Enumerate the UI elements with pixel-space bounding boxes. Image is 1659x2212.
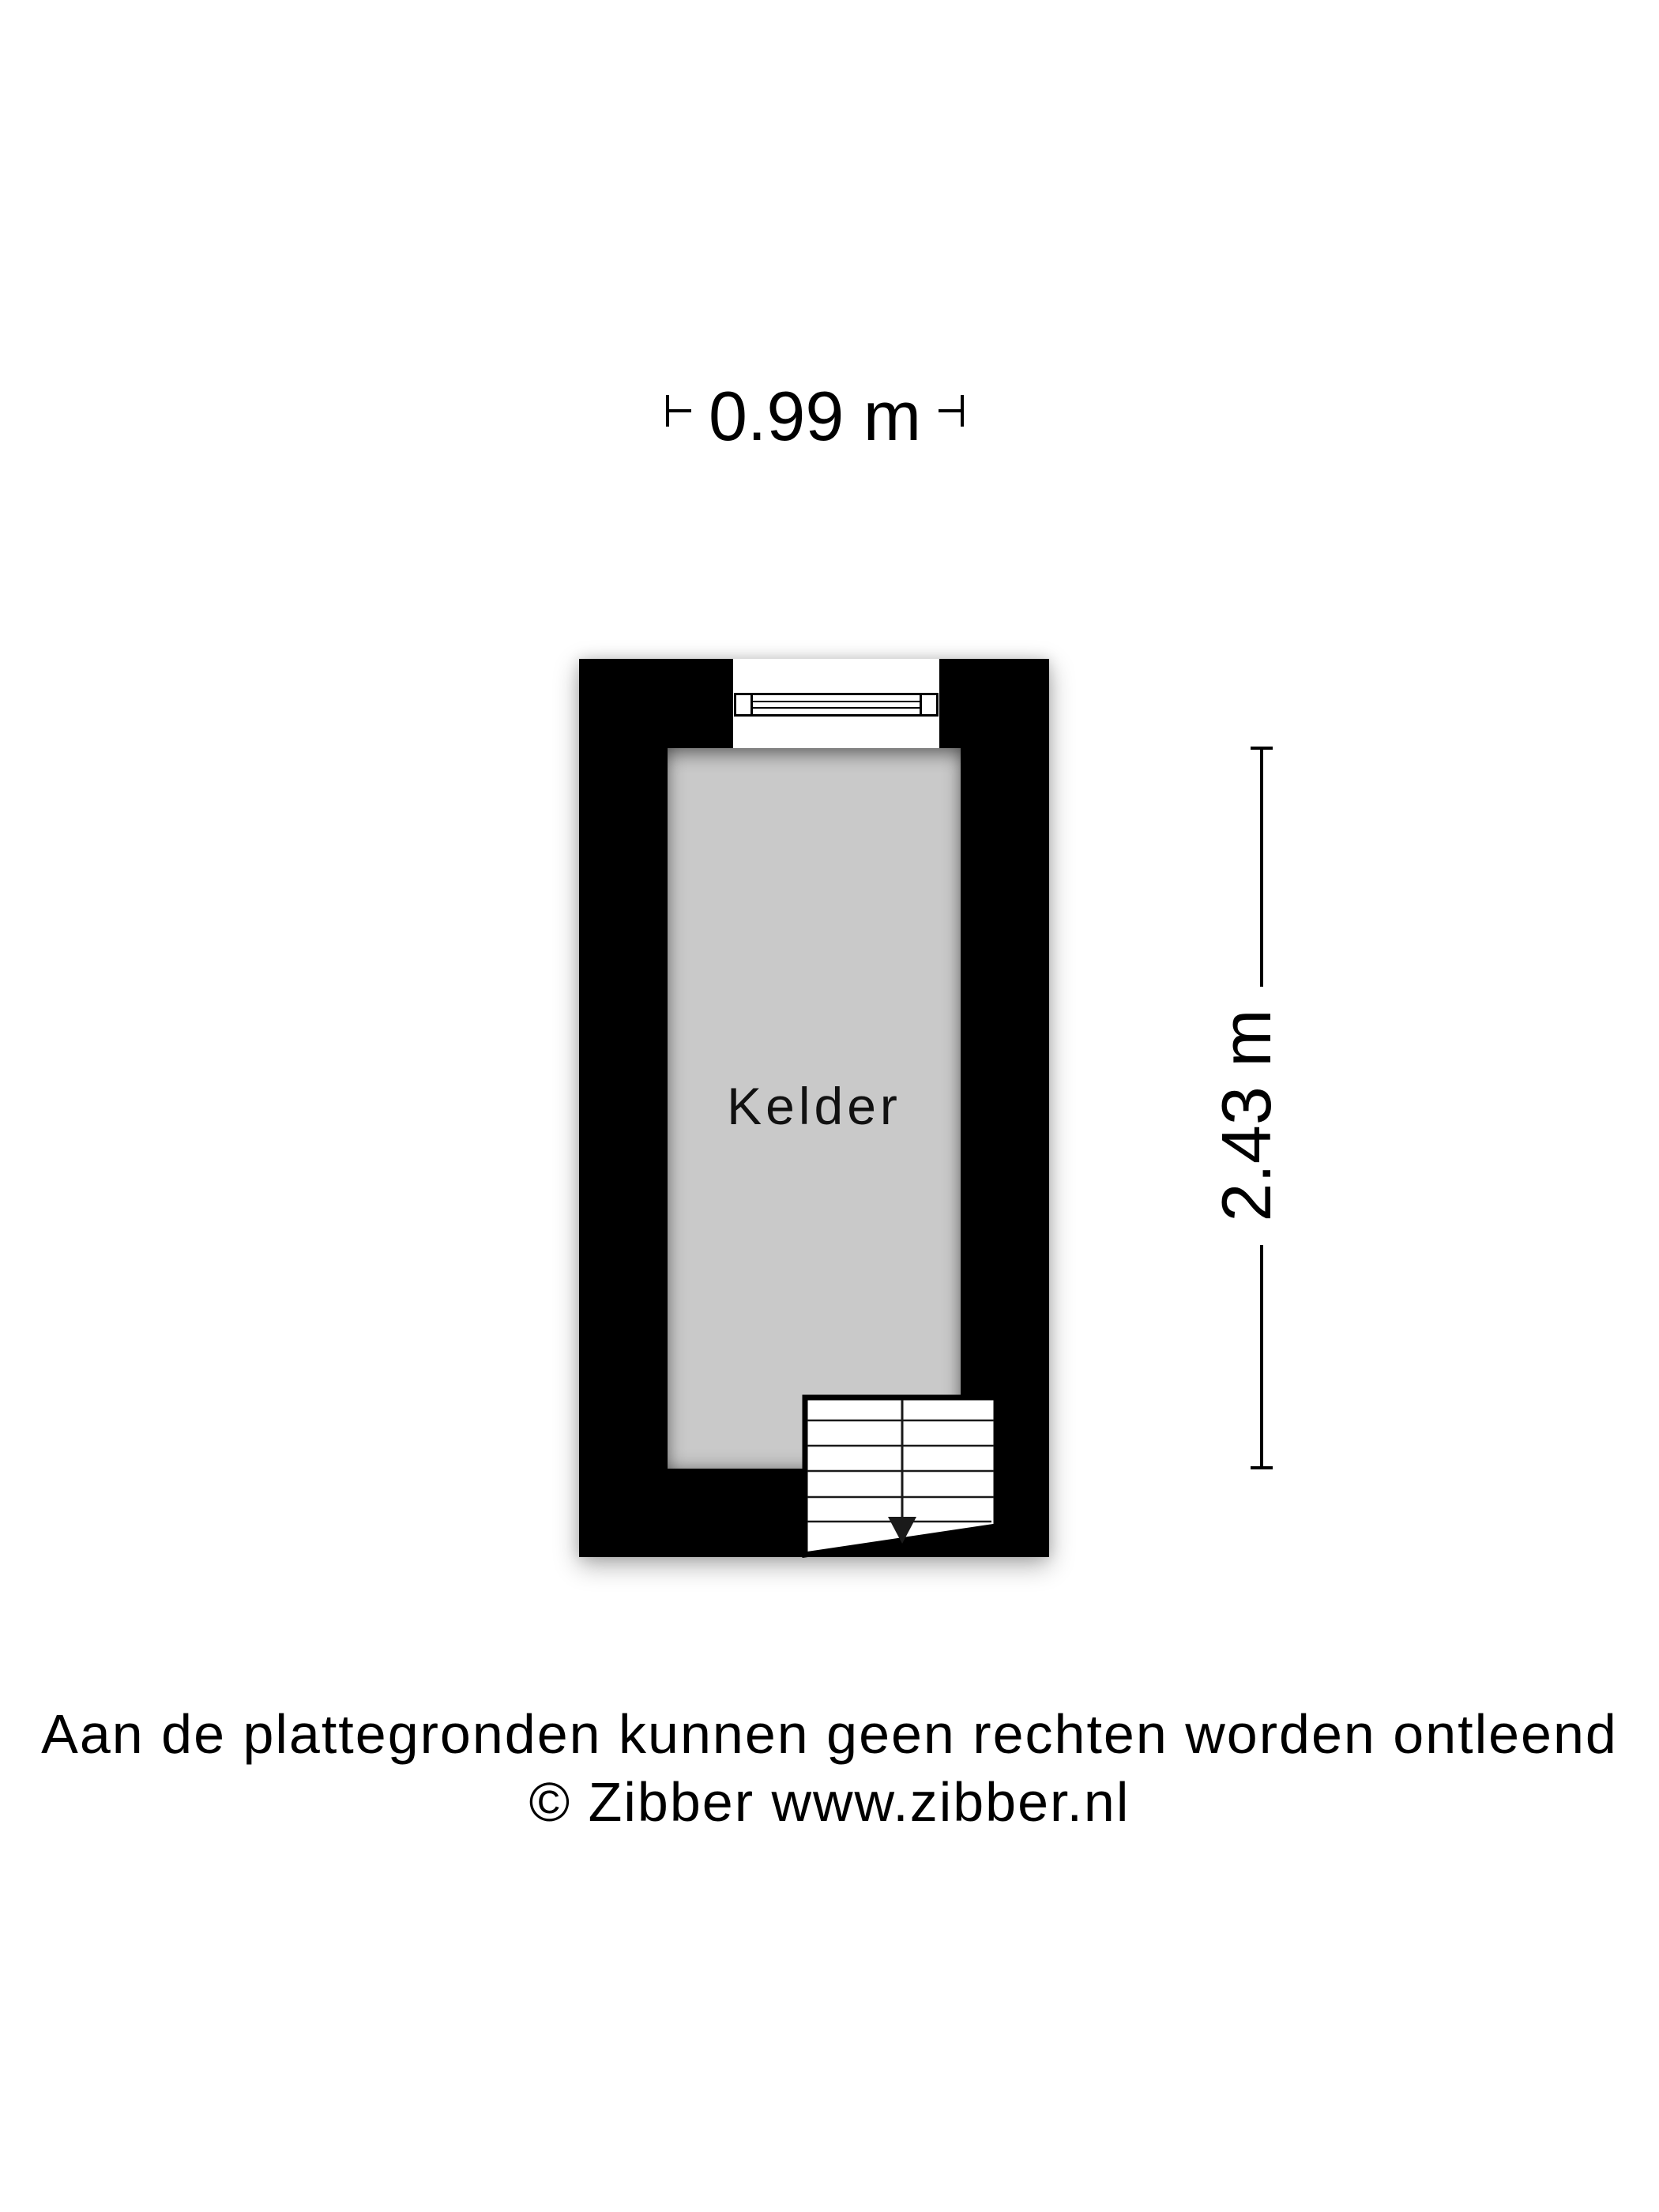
dimension-line-upper: [1260, 748, 1263, 987]
window-icon: [734, 693, 939, 717]
wall-opening: [733, 659, 939, 748]
footer: Aan de plattegronden kunnen geen rechten…: [0, 1700, 1659, 1836]
stairs-icon: [802, 1394, 999, 1559]
window-glazing: [753, 693, 920, 717]
dimension-cap-bottom: [1251, 1466, 1273, 1469]
window-jamb-right: [920, 693, 939, 717]
floorplan-page: { "floorplan": { "room": { "label": "Kel…: [0, 0, 1659, 2212]
tick-stem: [939, 409, 964, 412]
room-kelder: Kelder: [668, 748, 961, 1469]
height-dimension-label: 2.43 m: [1207, 957, 1286, 1273]
copyright-text: © Zibber www.zibber.nl: [0, 1768, 1659, 1836]
dimension-line-lower: [1260, 1245, 1263, 1468]
disclaimer-text: Aan de plattegronden kunnen geen rechten…: [0, 1700, 1659, 1768]
floorplan-outline: Kelder: [579, 659, 1049, 1557]
width-dimension-label: 0.99 m: [668, 381, 962, 452]
window-pane-line: [753, 701, 920, 702]
window-jamb-left: [734, 693, 753, 717]
window-pane-line: [753, 707, 920, 709]
room-label: Kelder: [668, 1076, 961, 1136]
dimension-tick-right-icon: [939, 395, 964, 427]
